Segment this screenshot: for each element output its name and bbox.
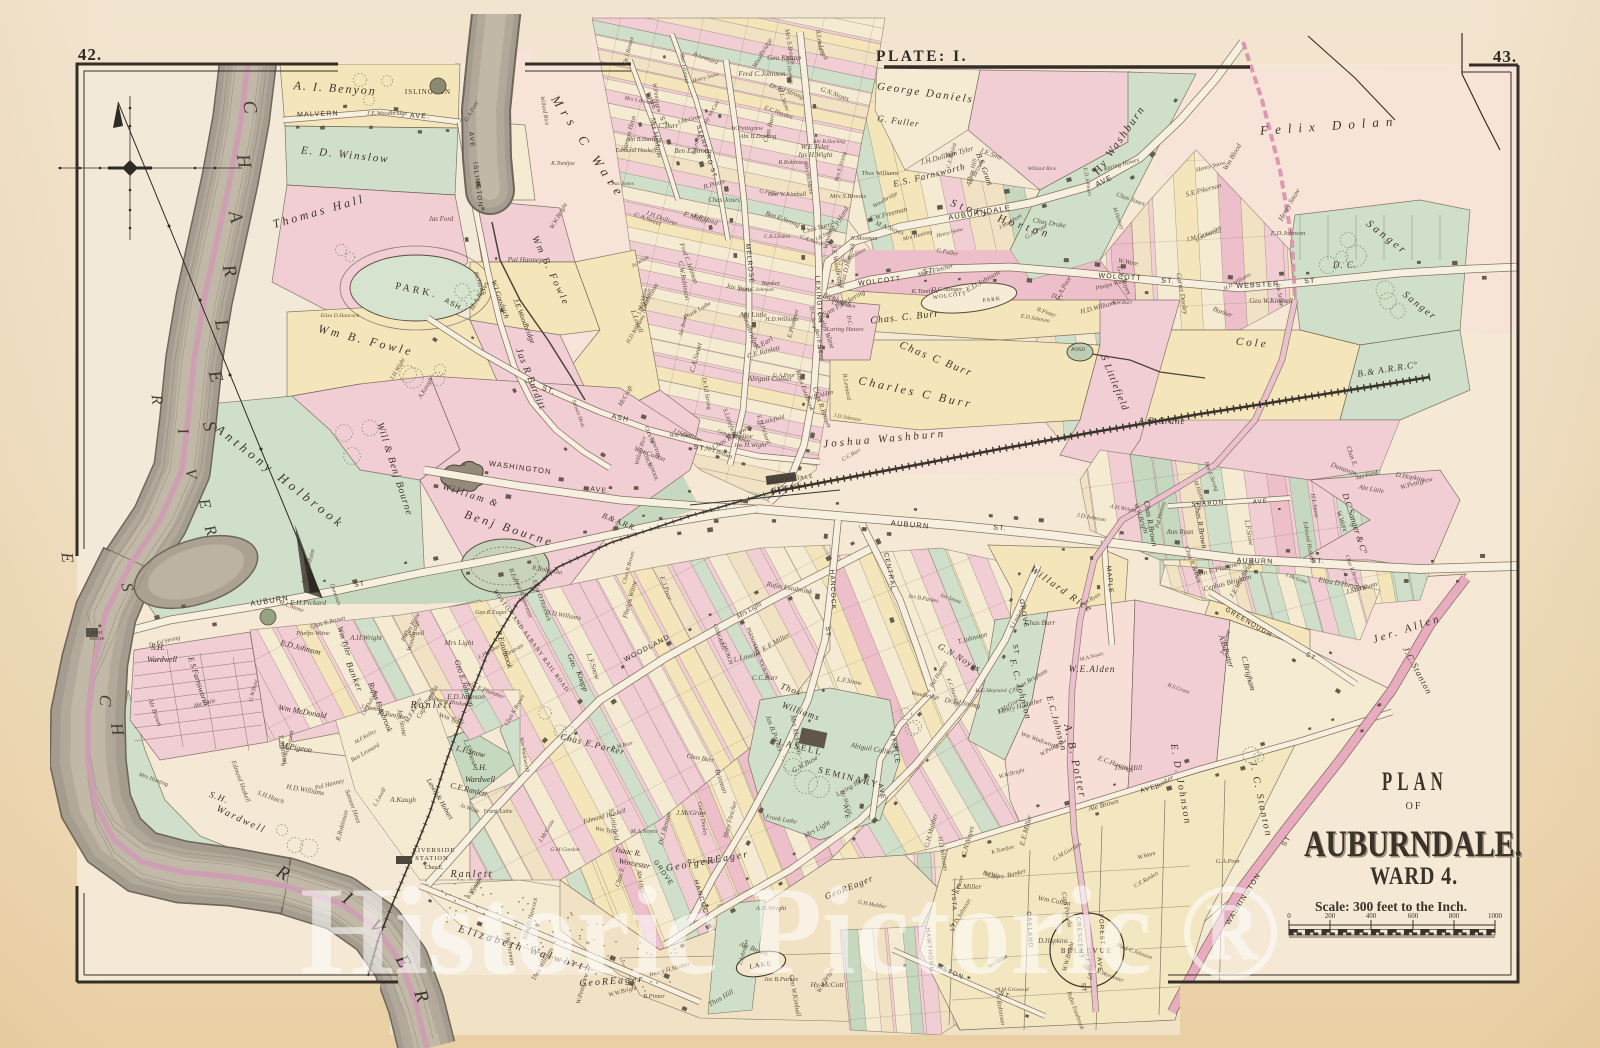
svg-text:S.H.: S.H. <box>151 643 165 652</box>
svg-text:Abigail Collier: Abigail Collier <box>747 374 793 383</box>
svg-text:R.Robinson: R.Robinson <box>777 159 807 166</box>
svg-text:C.B.Lindon: C.B.Lindon <box>764 234 790 240</box>
svg-text:J.McGraw: J.McGraw <box>676 809 706 817</box>
svg-text:W.E.Tyler: W.E.Tyler <box>801 142 830 151</box>
svg-text:K.Tomljoe: K.Tomljoe <box>550 161 575 167</box>
svg-text:Mrs S.Brooks: Mrs S.Brooks <box>829 193 867 200</box>
svg-text:A.H.Wright: A.H.Wright <box>349 635 382 642</box>
svg-text:N.Mosman: N.Mosman <box>850 235 878 242</box>
svg-text:Mrs Light: Mrs Light <box>444 638 475 647</box>
svg-text:POND: POND <box>1070 348 1085 353</box>
svg-text:PLAN: PLAN <box>1382 767 1448 796</box>
svg-text:0: 0 <box>1287 912 1291 920</box>
svg-text:Abt Little: Abt Little <box>738 310 767 319</box>
svg-text:400: 400 <box>1366 912 1377 920</box>
svg-text:Jas Ford: Jas Ford <box>429 216 454 223</box>
svg-text:WARD 4.: WARD 4. <box>1370 863 1458 890</box>
svg-text:Historic Pictoric: Historic Pictoric <box>300 862 1152 1001</box>
svg-text:Ranlett: Ranlett <box>410 700 454 711</box>
svg-text:PLATE: I.: PLATE: I. <box>876 48 968 65</box>
svg-text:Ann Ryan: Ann Ryan <box>1166 529 1194 536</box>
svg-text:ST.: ST. <box>1161 278 1175 286</box>
svg-text:BOAT: BOAT <box>91 630 103 635</box>
svg-text:Fred C.Johnson: Fred C.Johnson <box>737 69 786 78</box>
svg-text:H.G.Maynard: H.G.Maynard <box>974 688 1006 694</box>
svg-text:S.H.: S.H. <box>473 763 487 772</box>
svg-text:W.Pettigrew: W.Pettigrew <box>731 125 764 132</box>
svg-text:Eliza D.Hancock: Eliza D.Hancock <box>320 313 360 319</box>
svg-text:Frank Lathe: Frank Lathe <box>483 809 513 815</box>
svg-text:STATION: STATION <box>415 855 449 862</box>
svg-text:Abt B.Darling: Abt B.Darling <box>739 133 778 140</box>
svg-text:E: E <box>57 551 77 565</box>
svg-text:800: 800 <box>1449 912 1460 920</box>
svg-text:Geo R.Eager: Geo R.Eager <box>475 610 507 616</box>
svg-text:Jas H.Wight: Jas H.Wight <box>734 442 767 449</box>
svg-text:200: 200 <box>1325 912 1336 920</box>
svg-text:MALVERN: MALVERN <box>297 110 339 118</box>
svg-text:HOUSE: HOUSE <box>89 636 104 641</box>
svg-text:AUBURN: AUBURN <box>1237 557 1274 565</box>
svg-text:W.E.Alden: W.E.Alden <box>1069 664 1116 674</box>
svg-text:AVE.: AVE. <box>410 112 431 120</box>
svg-text:Jas H.Wight: Jas H.Wight <box>798 151 834 159</box>
svg-text:Thos Hill: Thos Hill <box>1114 763 1142 772</box>
svg-text:ST: ST <box>816 344 824 355</box>
svg-text:Banker: Banker <box>762 280 781 287</box>
svg-text:42.: 42. <box>78 45 102 64</box>
svg-text:AUBURNDALE.: AUBURNDALE. <box>1304 824 1522 865</box>
svg-text:R: R <box>148 393 166 405</box>
svg-text:ST: ST <box>1304 278 1316 286</box>
svg-text:Chas Jones: Chas Jones <box>708 197 740 204</box>
svg-text:1000: 1000 <box>1488 912 1503 920</box>
svg-text:Willard Rice: Willard Rice <box>1028 166 1057 172</box>
svg-text:Wardwell: Wardwell <box>465 775 496 784</box>
svg-text:OF: OF <box>1406 801 1423 812</box>
svg-text:43.: 43. <box>1493 47 1517 66</box>
svg-text:Phelps Witne: Phelps Witne <box>295 630 330 637</box>
svg-text:Scale: 300 feet to the Inch.: Scale: 300 feet to the Inch. <box>1315 900 1467 915</box>
svg-text:Thos Williams: Thos Williams <box>861 170 898 177</box>
svg-text:®: ® <box>1178 855 1281 1008</box>
svg-text:A.Kaugh: A.Kaugh <box>389 795 416 804</box>
svg-text:AVE.: AVE. <box>1253 498 1271 505</box>
svg-text:G.M.Gordon: G.M.Gordon <box>550 847 579 853</box>
svg-text:ST.: ST. <box>1311 558 1325 565</box>
svg-text:Geo W.Kimball: Geo W.Kimball <box>1249 297 1293 305</box>
svg-text:J.E.Woodbridge: J.E.Woodbridge <box>367 110 408 117</box>
svg-text:M.A.Noyes: M.A.Noyes <box>630 829 658 835</box>
svg-text:E.D.Johnson: E.D.Johnson <box>1270 230 1306 237</box>
svg-text:A.B.Crane: A.B.Crane <box>1138 416 1186 426</box>
svg-text:ST: ST <box>824 626 832 637</box>
svg-text:ST.: ST. <box>993 524 1007 532</box>
svg-text:600: 600 <box>1408 912 1419 920</box>
svg-text:RIVERSIDE: RIVERSIDE <box>413 847 456 854</box>
svg-text:Wardwell: Wardwell <box>147 655 178 664</box>
svg-text:A.W.Burr: A.W.Burr <box>1111 300 1134 306</box>
